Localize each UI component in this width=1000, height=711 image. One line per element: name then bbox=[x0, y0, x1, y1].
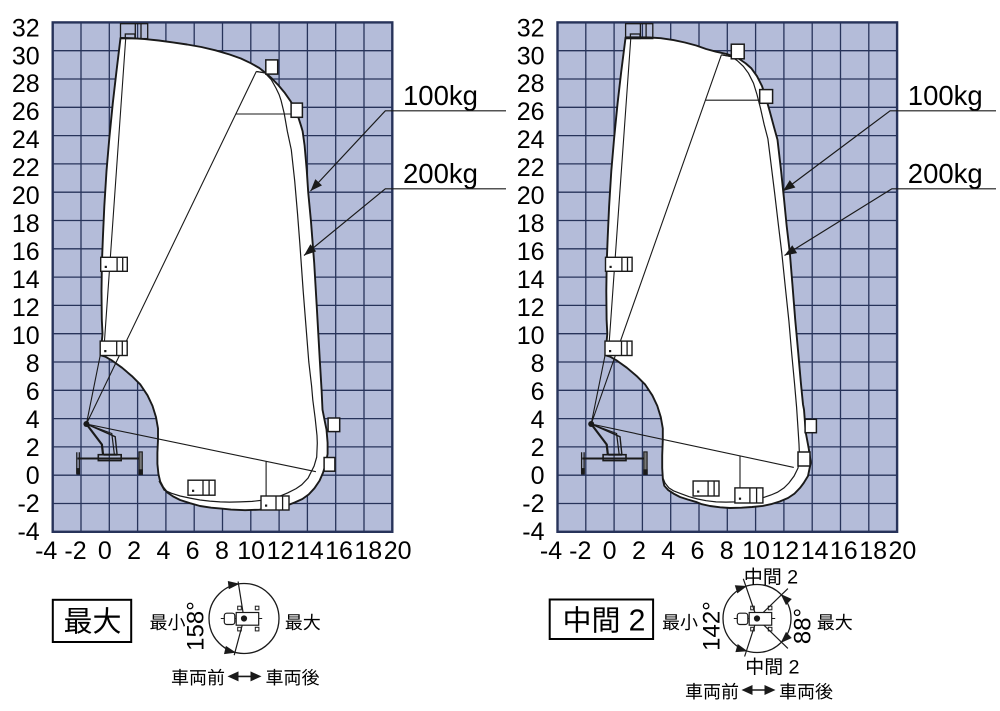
svg-text:158°: 158° bbox=[183, 601, 210, 651]
svg-text:6: 6 bbox=[531, 378, 545, 406]
svg-text:10: 10 bbox=[742, 537, 770, 565]
svg-text:2: 2 bbox=[789, 657, 800, 679]
svg-text:8: 8 bbox=[720, 537, 734, 565]
svg-text:-2: -2 bbox=[522, 490, 544, 518]
svg-text:18: 18 bbox=[354, 537, 382, 565]
svg-text:26: 26 bbox=[12, 98, 40, 126]
svg-text:12: 12 bbox=[267, 537, 295, 565]
svg-text:16: 16 bbox=[325, 537, 353, 565]
svg-text:2: 2 bbox=[629, 605, 646, 638]
svg-text:32: 32 bbox=[517, 14, 545, 42]
svg-text:0: 0 bbox=[26, 462, 40, 490]
svg-text:14: 14 bbox=[517, 266, 545, 294]
svg-text:2: 2 bbox=[127, 537, 141, 565]
svg-text:-4: -4 bbox=[540, 537, 562, 565]
svg-text:100kg: 100kg bbox=[908, 80, 983, 111]
svg-text:-2: -2 bbox=[569, 537, 591, 565]
svg-text:22: 22 bbox=[12, 154, 40, 182]
svg-text:8: 8 bbox=[531, 350, 545, 378]
svg-text:16: 16 bbox=[517, 238, 545, 266]
svg-text:8: 8 bbox=[215, 537, 229, 565]
svg-text:12: 12 bbox=[12, 294, 40, 322]
svg-text:2: 2 bbox=[787, 567, 798, 589]
svg-text:14: 14 bbox=[296, 537, 324, 565]
svg-text:-4: -4 bbox=[35, 537, 57, 565]
svg-text:32: 32 bbox=[12, 14, 40, 42]
svg-text:88°: 88° bbox=[790, 608, 817, 644]
svg-text:14: 14 bbox=[12, 266, 40, 294]
svg-text:4: 4 bbox=[156, 537, 170, 565]
svg-text:26: 26 bbox=[517, 98, 545, 126]
svg-text:-2: -2 bbox=[17, 490, 39, 518]
svg-text:30: 30 bbox=[12, 42, 40, 70]
svg-text:16: 16 bbox=[12, 238, 40, 266]
svg-text:24: 24 bbox=[12, 126, 40, 154]
svg-text:28: 28 bbox=[12, 70, 40, 98]
svg-text:20: 20 bbox=[384, 537, 412, 565]
svg-text:18: 18 bbox=[517, 210, 545, 238]
svg-text:0: 0 bbox=[531, 462, 545, 490]
svg-text:10: 10 bbox=[517, 322, 545, 350]
svg-text:14: 14 bbox=[801, 537, 829, 565]
svg-text:16: 16 bbox=[830, 537, 858, 565]
svg-text:4: 4 bbox=[531, 406, 545, 434]
svg-text:2: 2 bbox=[531, 434, 545, 462]
svg-text:142°: 142° bbox=[699, 601, 726, 651]
svg-text:-2: -2 bbox=[64, 537, 86, 565]
svg-text:8: 8 bbox=[26, 350, 40, 378]
svg-text:10: 10 bbox=[12, 322, 40, 350]
svg-text:4: 4 bbox=[26, 406, 40, 434]
svg-text:18: 18 bbox=[12, 210, 40, 238]
svg-text:20: 20 bbox=[12, 182, 40, 210]
svg-text:100kg: 100kg bbox=[403, 80, 478, 111]
svg-text:4: 4 bbox=[661, 537, 675, 565]
svg-text:0: 0 bbox=[603, 537, 617, 565]
svg-text:20: 20 bbox=[517, 182, 545, 210]
svg-text:10: 10 bbox=[237, 537, 265, 565]
svg-text:6: 6 bbox=[26, 378, 40, 406]
svg-text:22: 22 bbox=[517, 154, 545, 182]
svg-text:2: 2 bbox=[26, 434, 40, 462]
svg-text:6: 6 bbox=[690, 537, 704, 565]
svg-text:2: 2 bbox=[632, 537, 646, 565]
svg-text:6: 6 bbox=[186, 537, 200, 565]
svg-text:20: 20 bbox=[888, 537, 916, 565]
svg-text:30: 30 bbox=[517, 42, 545, 70]
svg-text:28: 28 bbox=[517, 70, 545, 98]
svg-text:200kg: 200kg bbox=[403, 158, 478, 189]
svg-text:12: 12 bbox=[771, 537, 799, 565]
svg-text:200kg: 200kg bbox=[908, 158, 983, 189]
svg-text:12: 12 bbox=[517, 294, 545, 322]
svg-text:24: 24 bbox=[517, 126, 545, 154]
svg-text:0: 0 bbox=[98, 537, 112, 565]
svg-text:18: 18 bbox=[859, 537, 887, 565]
